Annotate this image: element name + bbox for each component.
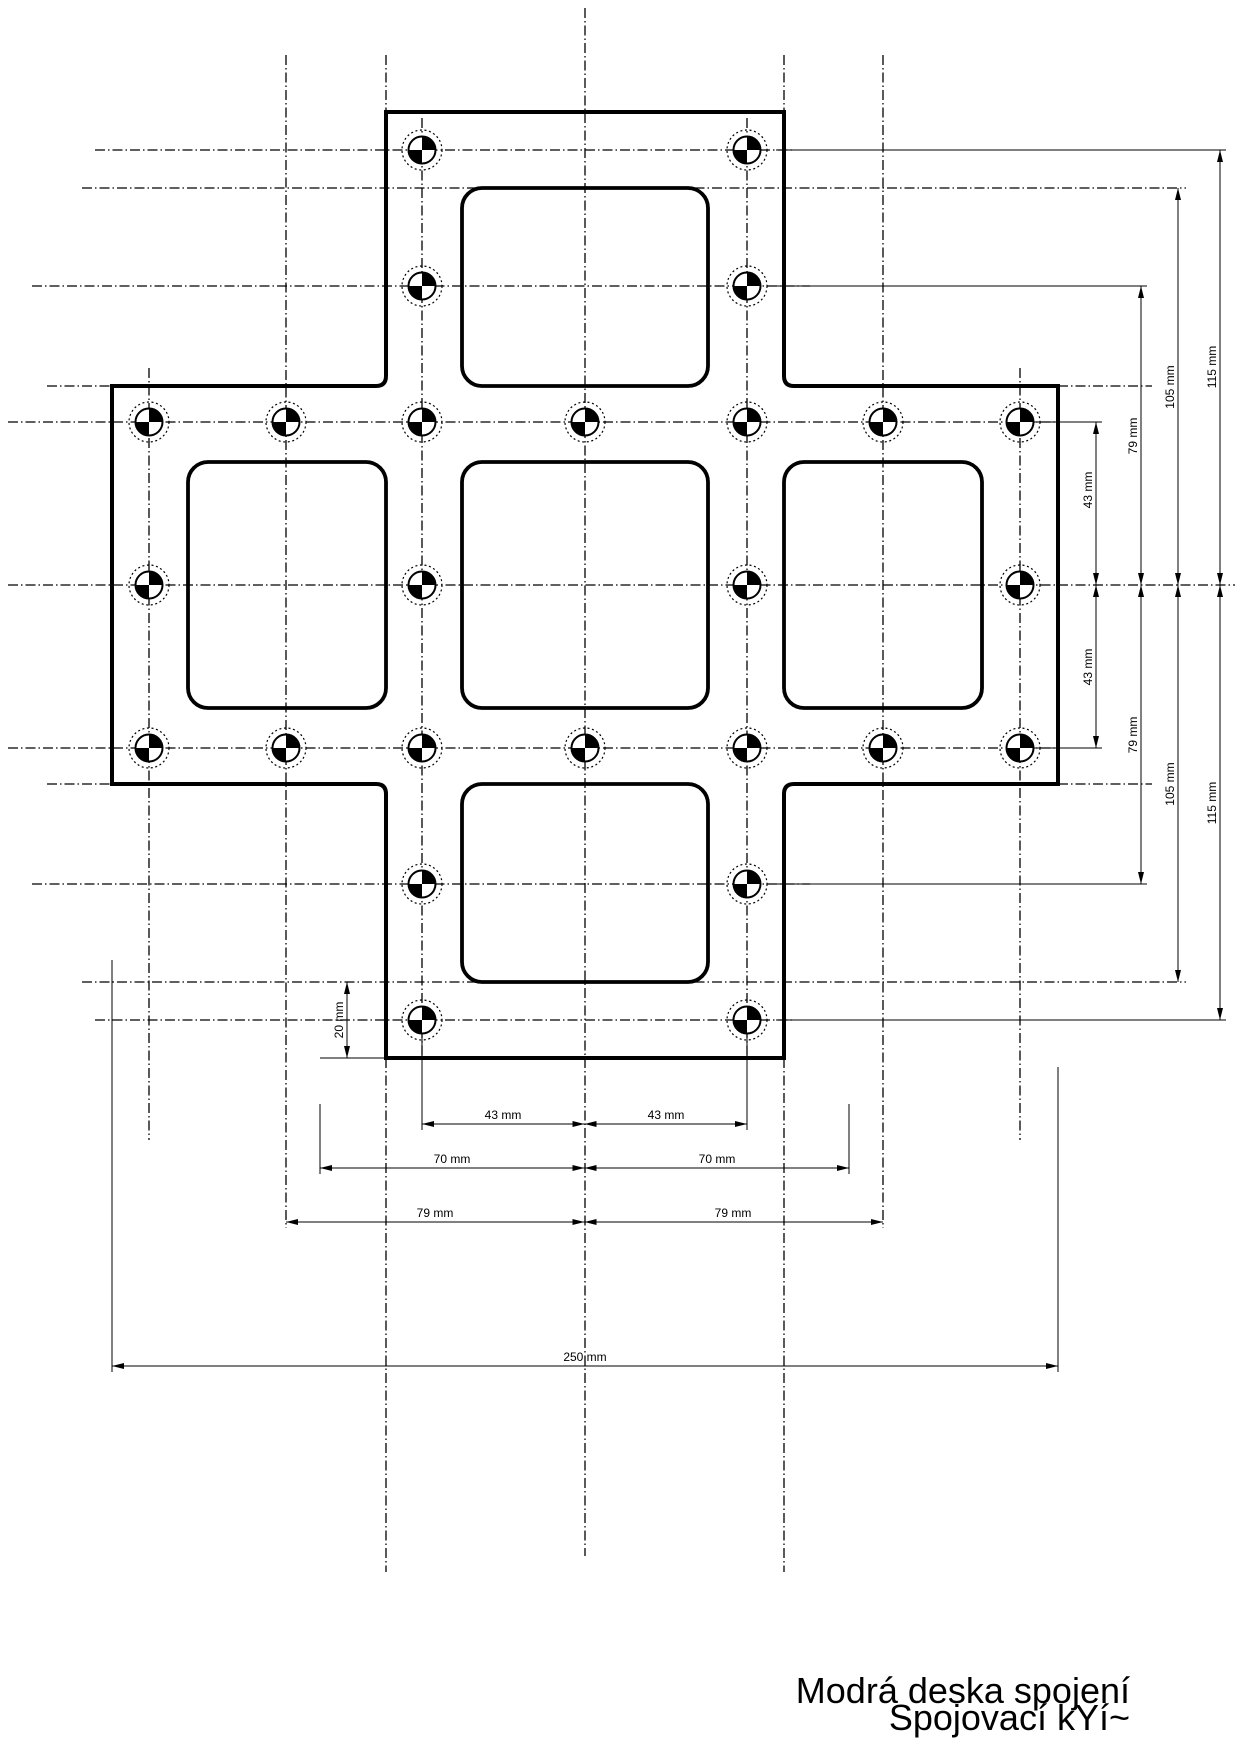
dim-label-70-bottom-left: 70 mm <box>434 1152 471 1166</box>
dim-label-43-right-bottom: 43 mm <box>1081 649 1095 686</box>
drawing-title-line2: Spojovací kYí~ <box>889 1697 1130 1738</box>
dim-label-105-right-bottom: 105 mm <box>1163 762 1177 805</box>
dim-label-43-right-top: 43 mm <box>1081 472 1095 509</box>
dim-label-115-right-bottom: 115 mm <box>1205 782 1219 824</box>
technical-drawing-cross-plate: 43 mm 43 mm 70 mm 70 mm 79 mm 79 mm 250 … <box>0 0 1242 1744</box>
cutout-left <box>188 462 386 708</box>
dim-label-79-bottom-left: 79 mm <box>417 1206 454 1220</box>
drawing-page: 43 mm 43 mm 70 mm 70 mm 79 mm 79 mm 250 … <box>0 0 1242 1744</box>
dim-label-20-left: 20 mm <box>332 1002 346 1039</box>
dim-label-250-bottom: 250 mm <box>563 1350 606 1364</box>
dim-label-79-right-top: 79 mm <box>1126 418 1140 455</box>
cutout-top <box>462 188 708 386</box>
dim-label-79-bottom-right: 79 mm <box>715 1206 752 1220</box>
dim-label-70-bottom-right: 70 mm <box>699 1152 736 1166</box>
title-block: Modrá deska spojení Spojovací kYí~ <box>796 1670 1130 1738</box>
dim-label-43-bottom-left: 43 mm <box>485 1108 522 1122</box>
dim-label-79-right-bottom: 79 mm <box>1126 717 1140 754</box>
dim-label-105-right-top: 105 mm <box>1163 365 1177 408</box>
dim-label-43-bottom-right: 43 mm <box>648 1108 685 1122</box>
dim-label-115-right-top: 115 mm <box>1205 346 1219 388</box>
